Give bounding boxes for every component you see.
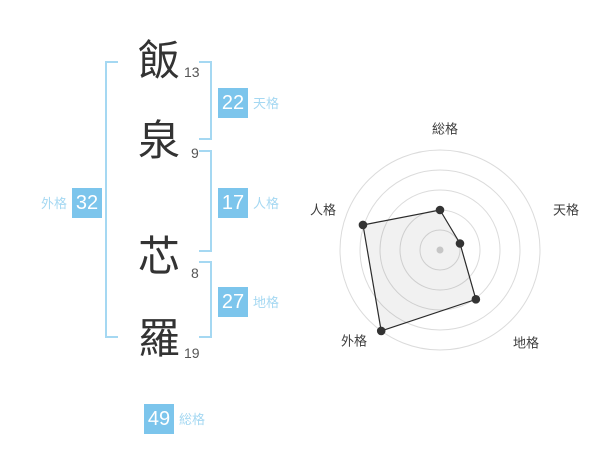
radar-axis-label: 総格 <box>432 122 458 137</box>
radar-ring <box>400 210 480 290</box>
radar-data-point <box>456 239 465 248</box>
radar-polygon <box>363 210 476 331</box>
radar-axis-label: 外格 <box>341 334 367 349</box>
radar-chart: 総格天格地格外格人格 <box>0 0 600 470</box>
radar-data-point <box>359 221 368 230</box>
gaikaku-bracket <box>105 61 118 338</box>
jinkaku-label: 人格 <box>253 196 279 211</box>
gaikaku-label: 外格 <box>41 196 67 211</box>
chikaku-value-box: 27 <box>218 287 248 317</box>
chikaku-bracket <box>199 261 212 338</box>
chikaku-label: 地格 <box>253 295 279 310</box>
radar-data-point <box>472 295 481 304</box>
gaikaku-value-box: 32 <box>72 188 102 218</box>
tenkaku-bracket <box>199 61 212 140</box>
radar-center-dot <box>437 247 444 254</box>
radar-ring <box>420 230 460 270</box>
radar-axis-label: 天格 <box>553 203 579 218</box>
stroke-count-4: 19 <box>184 346 200 360</box>
stroke-count-3: 8 <box>191 266 199 280</box>
tenkaku-label: 天格 <box>253 96 279 111</box>
stroke-count-2: 9 <box>191 146 199 160</box>
name-char-4: 羅 <box>135 318 183 360</box>
tenkaku-value-box: 22 <box>218 88 248 118</box>
name-char-3: 芯 <box>135 236 183 278</box>
jinkaku-bracket <box>199 150 212 252</box>
radar-axis-label: 地格 <box>513 336 539 351</box>
soukaku-label: 総格 <box>179 412 205 427</box>
radar-data-point <box>436 206 445 215</box>
name-analysis-panel: 飯 泉 芯 羅 13 9 8 19 22 天格 17 人格 27 地格 外格 3… <box>0 0 600 470</box>
soukaku-value-box: 49 <box>144 404 174 434</box>
radar-ring <box>380 190 500 310</box>
radar-data-point <box>377 327 386 336</box>
name-char-1: 飯 <box>135 40 183 82</box>
name-char-2: 泉 <box>135 120 183 162</box>
radar-ring <box>360 170 520 330</box>
radar-ring <box>340 150 540 350</box>
jinkaku-value-box: 17 <box>218 188 248 218</box>
radar-axis-label: 人格 <box>310 203 336 218</box>
stroke-count-1: 13 <box>184 65 200 79</box>
